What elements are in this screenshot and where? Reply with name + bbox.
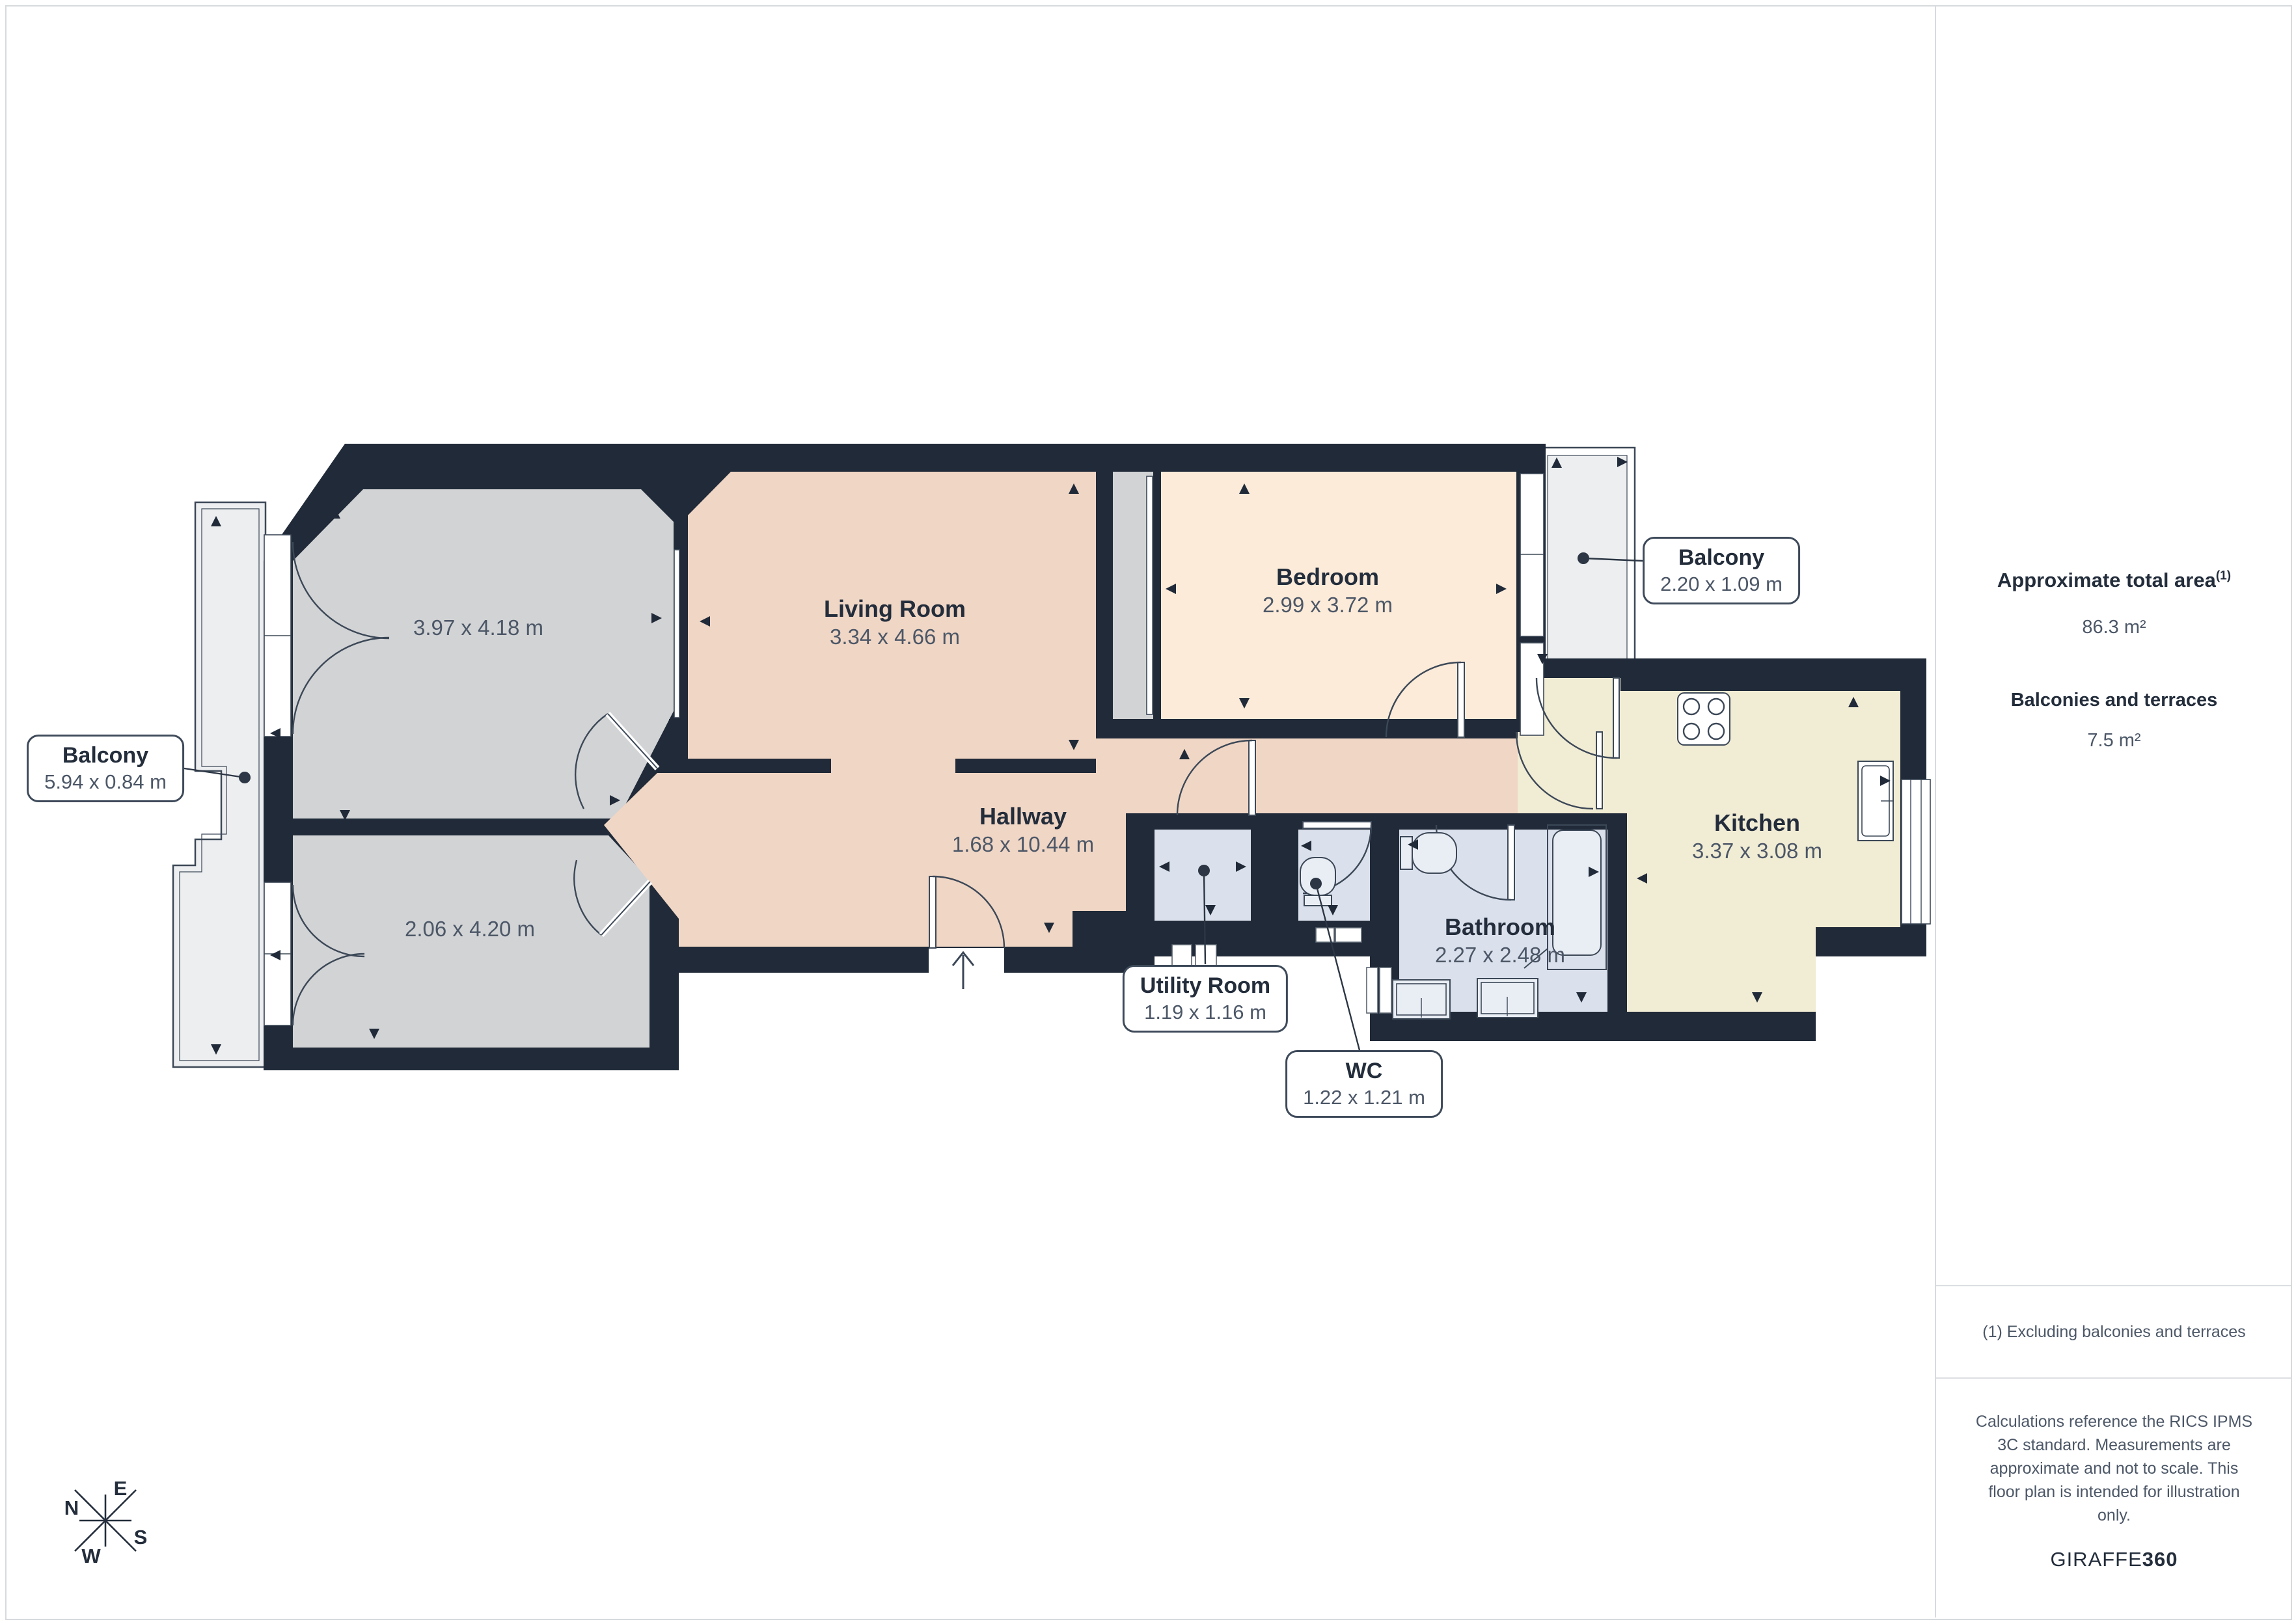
leader-dot [1578,552,1589,564]
entry-opening [929,948,1004,973]
callout-dims: 2.20 x 1.09 m [1660,571,1783,597]
door-leaf [1249,740,1255,815]
room-dims: 3.37 x 3.08 m [1692,837,1822,865]
room-dims: 2.99 x 3.72 m [1263,591,1393,619]
callout-title: Balcony [44,742,167,769]
window [1520,474,1544,636]
sink-icon [1477,979,1538,1018]
room-title: Hallway [952,802,1094,831]
glazed-partition [674,550,679,718]
balconies-label: Balconies and terraces [1936,690,2292,711]
toilet-icon [1401,833,1456,873]
floor-plan-page: Living Room 3.34 x 4.66 m Bedroom 2.99 x… [0,0,2296,1624]
total-area-text: Approximate total area [1997,569,2216,591]
balcony-left [173,502,266,1067]
callout-dims: 1.19 x 1.16 m [1140,999,1270,1025]
room-label-bathroom: Bathroom 2.27 x 2.48 m [1435,913,1565,969]
compass-n-label: N [64,1496,79,1520]
door-leaf [1303,822,1371,828]
callout-wc: WC 1.22 x 1.21 m [1285,1050,1443,1118]
compass-w-label: W [81,1545,100,1568]
footnote-text: (1) Excluding balconies and terraces [1982,1323,2245,1342]
glazed-partition [1147,476,1153,714]
summary-sidebar: Approximate total area(1) 86.3 m² Balcon… [1935,5,2292,1617]
brand-name: GIRAFFE [2050,1548,2142,1571]
leader-dot [1198,865,1210,876]
compass-s-label: S [134,1526,148,1549]
room-label-bedroom: Bedroom 2.99 x 3.72 m [1263,563,1393,619]
callout-title: Balcony [1660,544,1783,571]
room-gray-top-floor [293,489,674,819]
door-leaf [1613,678,1619,758]
room-dims: 2.27 x 2.48 m [1435,941,1565,969]
brand-suffix: 360 [2142,1548,2178,1571]
room-label-living-room: Living Room 3.34 x 4.66 m [824,595,966,651]
sink-icon [1393,980,1450,1019]
disclaimer-box: Calculations reference the RICS IPMS 3C … [1936,1376,2292,1571]
door-leaf [1458,662,1464,737]
room-dims: 2.06 x 4.20 m [405,915,535,943]
room-dims: 3.34 x 4.66 m [824,623,966,651]
stove-icon [1678,693,1730,745]
total-area-value: 86.3 m² [1936,617,2292,638]
door-leaf [1508,825,1514,900]
room-dims: 3.97 x 4.18 m [413,614,543,642]
callout-title: WC [1303,1057,1425,1085]
room-dims: 1.68 x 10.44 m [952,831,1094,858]
room-label-gray-bottom: 2.06 x 4.20 m [405,915,535,943]
callout-balcony-left: Balcony 5.94 x 0.84 m [27,735,184,802]
room-title: Bathroom [1435,913,1565,941]
room-title: Bedroom [1263,563,1393,591]
disclaimer-text: Calculations reference the RICS IPMS 3C … [1974,1410,2255,1527]
door-leaf [1596,732,1602,809]
room-label-kitchen: Kitchen 3.37 x 3.08 m [1692,809,1822,865]
room-label-hallway: Hallway 1.68 x 10.44 m [952,802,1094,858]
footnote-box: (1) Excluding balconies and terraces [1936,1285,2292,1379]
kitchen-sink-icon [1858,761,1893,841]
leader-dot [239,772,251,783]
compass-e-label: E [114,1477,128,1500]
leader-dot [1310,878,1322,889]
brand-logo: GIRAFFE360 [1936,1548,2292,1571]
room-title: Kitchen [1692,809,1822,837]
total-area-label: Approximate total area(1) [1936,569,2292,592]
callout-title: Utility Room [1140,972,1270,999]
room-title: Living Room [824,595,966,623]
total-area-footnote-marker: (1) [2216,569,2231,583]
callout-balcony-right: Balcony 2.20 x 1.09 m [1643,537,1800,604]
callout-dims: 5.94 x 0.84 m [44,769,167,795]
callout-utility-room: Utility Room 1.19 x 1.16 m [1123,965,1288,1033]
callout-dims: 1.22 x 1.21 m [1303,1085,1425,1111]
window [1902,779,1930,924]
balconies-value: 7.5 m² [1936,730,2292,751]
room-label-gray-top: 3.97 x 4.18 m [413,614,543,642]
wall-corner-block [669,719,688,773]
door-leaf [929,876,936,948]
